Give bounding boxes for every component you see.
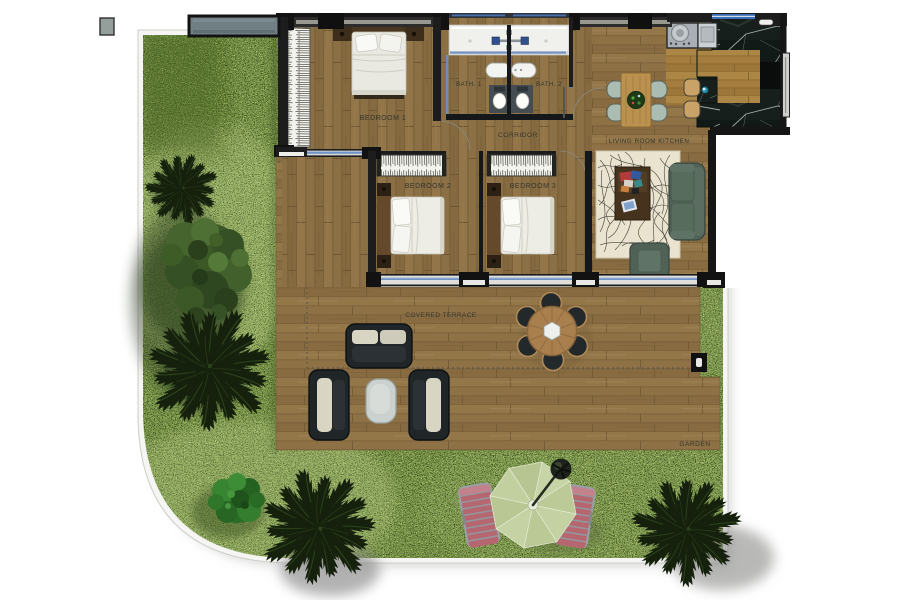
svg-text:CORRIDOR: CORRIDOR bbox=[498, 132, 538, 139]
svg-text:GARDEN: GARDEN bbox=[679, 441, 710, 448]
svg-text:BEDROOM 1: BEDROOM 1 bbox=[360, 115, 407, 122]
svg-text:COVERED TERRACE: COVERED TERRACE bbox=[405, 312, 476, 319]
svg-text:BEDROOM 2: BEDROOM 2 bbox=[405, 183, 452, 190]
svg-text:BEDROOM 3: BEDROOM 3 bbox=[510, 183, 557, 190]
svg-text:BATH. 1: BATH. 1 bbox=[456, 82, 482, 88]
svg-text:LIVING ROOM KITCHEN: LIVING ROOM KITCHEN bbox=[609, 138, 690, 145]
svg-text:BATH. 2: BATH. 2 bbox=[536, 82, 562, 88]
